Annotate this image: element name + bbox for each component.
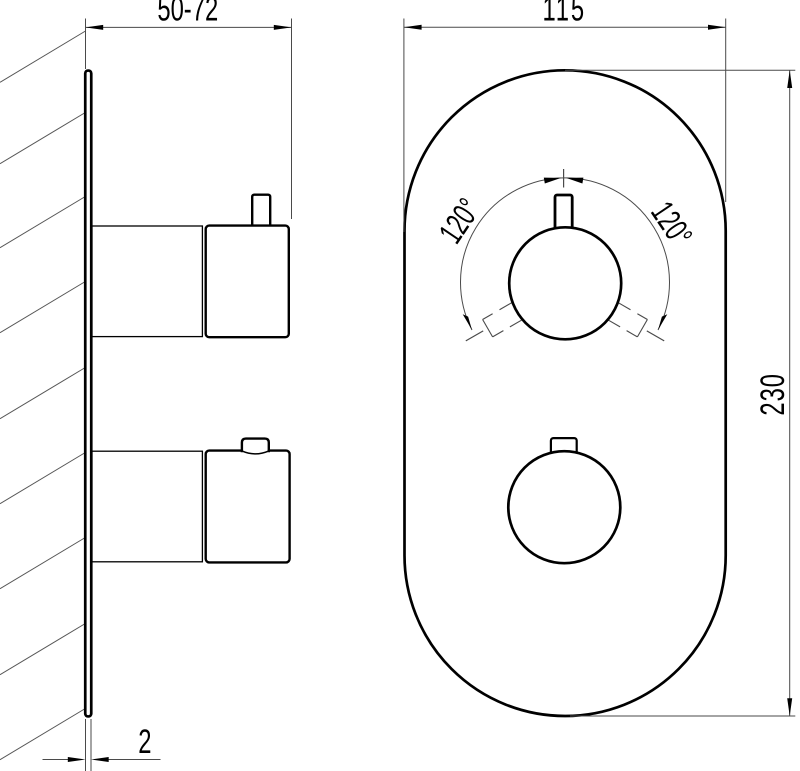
svg-text:115: 115 (543, 0, 586, 29)
svg-text:230: 230 (754, 373, 792, 416)
svg-text:50-72: 50-72 (157, 0, 218, 29)
svg-text:2: 2 (138, 723, 151, 761)
